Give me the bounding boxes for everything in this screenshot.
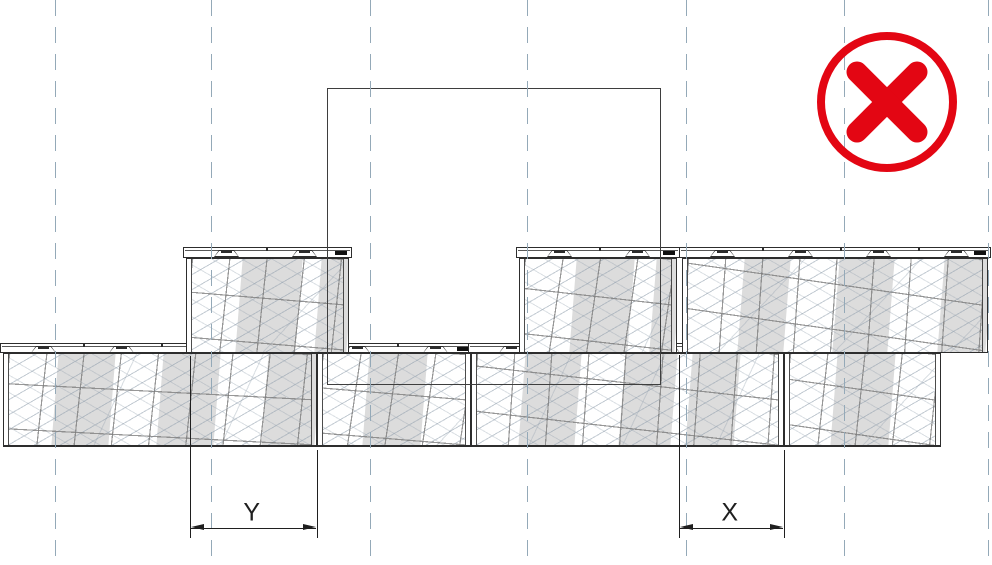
block-wall-line-right [982,259,983,352]
block-T3 [679,247,991,353]
block-lug [866,250,891,257]
block-lug [31,346,56,353]
block-wall-line-right [311,354,312,445]
block-lug [109,346,134,353]
block-lug [292,250,317,257]
block-wall-line-left [687,259,688,352]
extension-line [784,450,785,538]
hatch-texture [790,354,935,445]
guide-line-4 [527,0,528,565]
dimension-line [680,528,783,529]
dimension-arrow-right [770,524,783,530]
cap-mark [974,251,986,255]
hatch-texture [688,259,982,352]
guide-line-7 [988,0,989,565]
cap-mark [663,251,675,255]
prohibition-cross-icon [813,28,961,176]
block-wall-line-left [322,354,323,445]
extension-line [190,356,191,538]
extension-line [679,355,680,538]
block-body [784,353,941,447]
block-lug-notch [795,251,806,253]
cap-tick [161,344,163,347]
guide-line-2 [211,0,212,565]
block-body [682,258,988,353]
cap-tick [83,344,85,347]
block-lug [710,250,735,257]
dimension-arrow-right [303,524,316,530]
block-B4 [781,343,944,447]
diagram-stage: YX [0,0,992,565]
block-lug-notch [38,347,49,349]
cap-tick [266,248,268,251]
block-body [3,353,317,447]
block-lug [788,250,813,257]
cap-tick [840,248,842,251]
block-lug [214,250,239,257]
extension-line [317,450,318,538]
block-lug-notch [951,251,962,253]
cap-tick [918,248,920,251]
block-wall-line-left [191,259,192,352]
block-cap [679,247,991,258]
cap-tick [762,248,764,251]
dimension-arrow-left [191,524,204,530]
block-wall-line-right [778,354,779,445]
dimension-line [191,528,316,529]
block-lug [944,250,969,257]
dimension-arrow-left [680,524,693,530]
block-lug-notch [873,251,884,253]
block-lug-notch [116,347,127,349]
misplaced-block-outline [327,88,661,385]
block-wall-line-right [671,259,672,352]
dimension-label-y: Y [243,501,260,526]
block-lug-notch [221,251,232,253]
hatch-texture [192,259,343,352]
guide-line-5 [686,0,687,565]
guide-line-3 [370,0,371,565]
block-lug-notch [717,251,728,253]
block-lug-notch [299,251,310,253]
block-B1 [0,343,320,447]
dimension-label-x: X [721,501,738,526]
block-wall-line-left [8,354,9,445]
block-wall-line-left [789,354,790,445]
block-wall-line-right [935,354,936,445]
guide-line-1 [55,0,56,565]
